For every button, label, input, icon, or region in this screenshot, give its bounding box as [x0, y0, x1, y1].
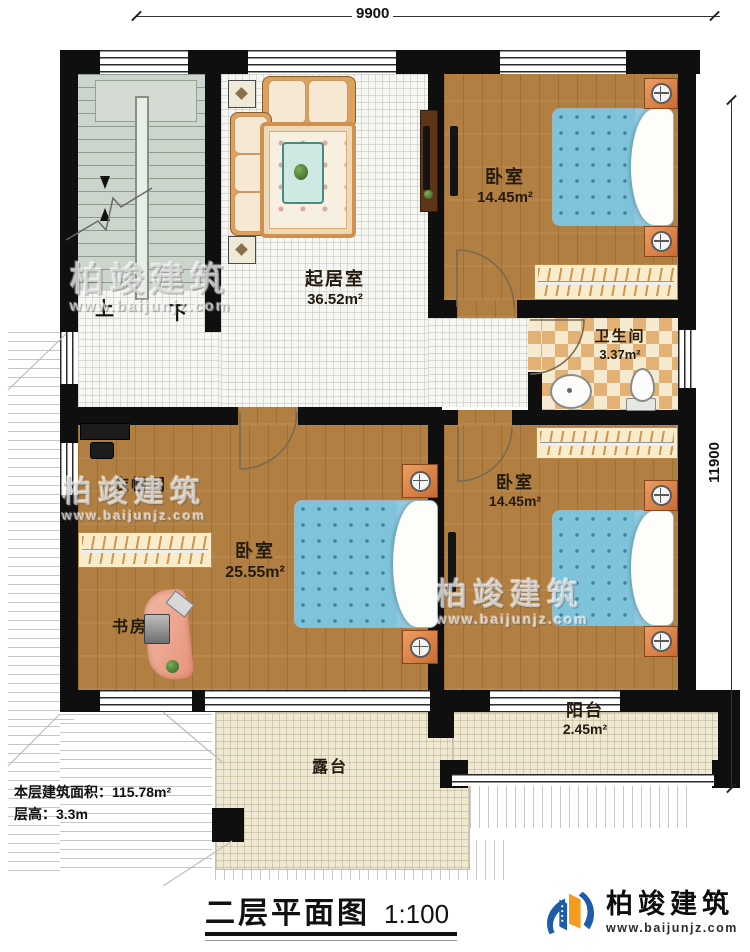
- room-label-balcony: 阳台 2.45m²: [530, 700, 640, 739]
- room-area: 2.45m²: [530, 721, 640, 739]
- logo-brand: 柏竣建筑: [606, 891, 738, 918]
- room-label-living: 起居室 36.52m²: [270, 268, 400, 309]
- door-gap-floor: [528, 318, 542, 372]
- dim-line-right: [731, 100, 732, 788]
- drawing-title: 二层平面图: [205, 888, 370, 932]
- floor-height-note: 层高：3.3m: [14, 804, 88, 824]
- room-name: 阳台: [530, 700, 640, 721]
- floor-area-note: 本层建筑面积：115.78m²: [14, 782, 171, 802]
- nightstand: [644, 226, 678, 257]
- lamp-icon: [410, 471, 431, 492]
- room-name: 卧室: [455, 472, 575, 493]
- stair-direction-arrow: [100, 176, 110, 189]
- mattress: [553, 511, 635, 625]
- door-gap-floor: [457, 300, 517, 318]
- wardrobe: [534, 264, 678, 300]
- window-bedroom-top: [500, 50, 626, 74]
- window-stairwell: [100, 50, 188, 74]
- stair-railing: [135, 96, 149, 300]
- window-hallway-west: [60, 332, 78, 384]
- lamp-icon: [410, 637, 431, 658]
- drawing-title-block: 二层平面图 1:100: [205, 888, 449, 932]
- room-area: 36.52m²: [270, 291, 400, 310]
- company-logo: 柏竣建筑 www.baijunjz.com: [540, 884, 738, 942]
- window-master-west: [60, 443, 78, 495]
- room-area: 14.45m²: [440, 189, 570, 208]
- logo-url: www.baijunjz.com: [606, 921, 738, 935]
- desk-plant-icon: [166, 660, 179, 673]
- wardrobe: [78, 532, 212, 568]
- sofa-cushion: [308, 80, 348, 124]
- room-label-master-bedroom: 卧室 25.55m²: [195, 540, 315, 583]
- sofa-cushion: [268, 80, 306, 124]
- door-gap-floor: [456, 410, 514, 425]
- title-underline: [205, 932, 457, 936]
- title-underline-thin: [205, 940, 457, 941]
- dim-top-label: 9900: [352, 5, 393, 22]
- double-bed: [552, 510, 674, 626]
- sink-icon: [550, 374, 592, 409]
- room-name: 卧室: [440, 166, 570, 189]
- terrace-pillar-ne: [428, 700, 454, 738]
- tv-bedroom-bottom: [448, 532, 456, 592]
- dim-line-top: [136, 16, 720, 17]
- stair-living-wall: [205, 50, 221, 332]
- room-label-terrace: 露台: [290, 758, 370, 778]
- wardrobe: [536, 427, 678, 459]
- nightstand: [644, 78, 678, 109]
- room-name: 露台: [290, 758, 370, 778]
- drawing-scale: 1:100: [384, 899, 449, 930]
- lamp-icon: [651, 83, 672, 104]
- room-area: 14.45m²: [455, 493, 575, 511]
- bedroom-bottom-north-stub-a: [442, 410, 458, 425]
- blanket: [631, 109, 673, 225]
- terrace-pillar-sw: [212, 808, 244, 842]
- hallway-south-wall-b: [298, 407, 442, 425]
- room-name: 卧室: [195, 540, 315, 563]
- console-plant-icon: [424, 190, 433, 199]
- room-name: 衣帽间: [90, 476, 190, 496]
- nightstand: [644, 480, 678, 511]
- double-bed: [552, 108, 674, 226]
- floor-plan: 上 下: [0, 0, 750, 952]
- room-area: 3.37m²: [565, 347, 675, 363]
- bathroom-west-wall: [528, 372, 542, 410]
- double-bed: [294, 500, 438, 628]
- room-label-study: 书房: [90, 618, 170, 638]
- balcony-railing: [452, 774, 714, 786]
- toilet-icon: [630, 368, 655, 402]
- window-study-south: [100, 690, 192, 712]
- bedroom-top-south-wall-b: [517, 300, 696, 318]
- blanket: [631, 511, 673, 625]
- stair-up-label: 上: [95, 294, 114, 321]
- terrace-slider-door: [205, 690, 430, 712]
- room-name: 起居室: [270, 268, 400, 291]
- nightstand: [402, 464, 438, 498]
- room-label-bedroom-top: 卧室 14.45m²: [440, 166, 570, 207]
- door-gap-floor: [238, 407, 298, 425]
- blanket: [393, 501, 437, 627]
- corner-speaker: [228, 80, 256, 108]
- stool: [90, 442, 114, 459]
- room-area: 25.55m²: [195, 563, 315, 583]
- room-name: 卫生间: [565, 328, 675, 347]
- dim-right-label: 11900: [706, 438, 723, 487]
- stair-direction-arrow: [100, 208, 110, 221]
- dressing-table: [80, 423, 130, 440]
- corner-speaker: [228, 236, 256, 264]
- tv-living: [423, 126, 430, 190]
- stair-down-label: 下: [168, 298, 187, 325]
- room-name: 书房: [90, 618, 170, 638]
- nightstand: [644, 626, 678, 657]
- table-plant-icon: [294, 164, 308, 180]
- bedroom-bottom-north-stub-b: [512, 410, 528, 425]
- window-living: [248, 50, 396, 74]
- steps-hatch-below-balcony: [452, 782, 690, 828]
- logo-text: 柏竣建筑 www.baijunjz.com: [606, 891, 738, 935]
- room-label-bathroom: 卫生间 3.37m²: [565, 328, 675, 363]
- hallway-floor-right: [428, 318, 528, 407]
- bedroom-top-south-wall-a: [428, 300, 457, 318]
- nightstand: [402, 630, 438, 664]
- bathroom-south-wall: [528, 410, 696, 425]
- lamp-icon: [651, 631, 672, 652]
- lamp-icon: [651, 231, 672, 252]
- logo-icon: [540, 884, 598, 942]
- lamp-icon: [651, 485, 672, 506]
- room-label-bedroom-bottom: 卧室 14.45m²: [455, 472, 575, 511]
- room-label-cloakroom: 衣帽间: [90, 476, 190, 496]
- window-bathroom-east: [678, 330, 696, 388]
